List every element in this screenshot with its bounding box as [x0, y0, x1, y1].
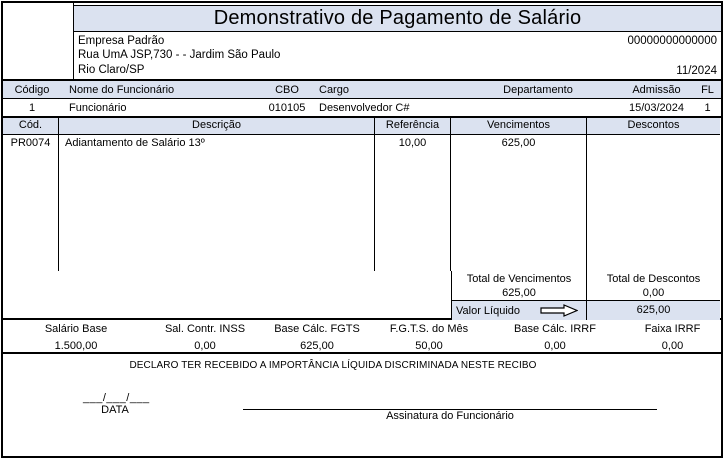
- employee-header-cargo: Cargo: [313, 84, 458, 96]
- page-title: Demonstrativo de Pagamento de Salário: [74, 5, 721, 32]
- total-descontos-label: Total de Descontos: [587, 272, 720, 286]
- total-vencimentos-label: Total de Vencimentos: [452, 272, 586, 286]
- employee-nome: Funcionário: [61, 102, 261, 114]
- base-label-inss: Sal. Contr. INSS: [149, 323, 261, 335]
- base-value-irrf: 0,00: [485, 340, 625, 352]
- employee-codigo: 1: [3, 102, 61, 114]
- employee-section: Código Nome do Funcionário CBO Cargo Dep…: [3, 81, 721, 118]
- declaration-section: DECLARO TER RECEBIDO A IMPORTÂNCIA LÍQUI…: [3, 354, 721, 449]
- base-label-salario-base: Salário Base: [3, 323, 149, 335]
- totals-empty-box: [3, 271, 452, 320]
- employee-data-row: 1 Funcionário 010105 Desenvolvedor C# 15…: [3, 99, 721, 116]
- employee-header-fl: FL: [695, 84, 720, 96]
- item-descricao: Adiantamento de Salário 13º: [59, 135, 375, 271]
- base-value-fgts-mes: 50,00: [373, 340, 485, 352]
- employee-header-cbo: CBO: [261, 84, 313, 96]
- company-city: Rio Claro/SP: [78, 63, 717, 78]
- signature-label: Assinatura do Funcionário: [243, 410, 657, 422]
- base-label-fgts: Base Cálc. FGTS: [261, 323, 373, 335]
- total-descontos: Total de Descontos 0,00: [587, 271, 720, 301]
- totals-section: Total de Vencimentos 625,00 Total de Des…: [3, 271, 721, 320]
- item-vencimentos: 625,00: [451, 135, 587, 271]
- employee-header-departamento: Departamento: [458, 84, 618, 96]
- items-header-vencimentos: Vencimentos: [451, 118, 587, 135]
- bases-section: Salário Base Sal. Contr. INSS Base Cálc.…: [3, 320, 721, 354]
- company-logo-box: [3, 3, 74, 79]
- declaration-text: DECLARO TER RECEBIDO A IMPORTÂNCIA LÍQUI…: [3, 360, 663, 371]
- total-vencimentos: Total de Vencimentos 625,00: [452, 271, 587, 301]
- total-vencimentos-value: 625,00: [452, 286, 586, 300]
- date-fill-placeholder: ___/___/___: [83, 392, 147, 404]
- right-arrow-icon: [540, 304, 578, 317]
- items-table: Cód. Descrição Referência Vencimentos De…: [3, 118, 721, 271]
- company-info: Empresa Padrão Rua UmA JSP,730 - - Jardi…: [74, 32, 721, 80]
- base-value-inss: 0,00: [149, 340, 261, 352]
- employee-admissao: 15/03/2024: [618, 102, 695, 114]
- valor-liquido-label: Valor Líquido: [456, 305, 520, 317]
- employee-header-codigo: Código: [3, 84, 61, 96]
- valor-liquido-cell: Valor Líquido: [452, 301, 587, 320]
- item-descontos: [587, 135, 720, 271]
- base-value-faixa-irrf: 0,00: [625, 340, 720, 352]
- payslip-document: Demonstrativo de Pagamento de Salário Em…: [1, 1, 723, 458]
- base-label-faixa-irrf: Faixa IRRF: [625, 323, 720, 335]
- items-header-cod: Cód.: [3, 118, 59, 135]
- employee-fl: 1: [695, 102, 720, 114]
- items-header-descontos: Descontos: [587, 118, 720, 135]
- base-label-irrf: Base Cálc. IRRF: [485, 323, 625, 335]
- base-label-fgts-mes: F.G.T.S. do Mês: [373, 323, 485, 335]
- header-section: Demonstrativo de Pagamento de Salário Em…: [3, 3, 721, 81]
- company-number: 00000000000000: [627, 34, 717, 49]
- company-name: Empresa Padrão: [78, 34, 717, 49]
- employee-cbo: 010105: [261, 102, 313, 114]
- signature-block: Assinatura do Funcionário: [243, 394, 657, 422]
- employee-header-admissao: Admissão: [618, 84, 695, 96]
- items-header-referencia: Referência: [375, 118, 451, 135]
- employee-cargo: Desenvolvedor C#: [313, 102, 458, 114]
- date-label: DATA: [83, 404, 147, 416]
- signature-line: [243, 394, 657, 410]
- item-cod: PR0074: [3, 135, 59, 271]
- items-header-descricao: Descrição: [59, 118, 375, 135]
- date-block: ___/___/___ DATA: [83, 392, 147, 416]
- company-address: Rua UmA JSP,730 - - Jardim São Paulo: [78, 48, 717, 63]
- employee-header-nome: Nome do Funcionário: [61, 84, 261, 96]
- reference-period: 11/2024: [676, 64, 717, 79]
- base-value-fgts: 625,00: [261, 340, 373, 352]
- base-value-salario-base: 1.500,00: [3, 340, 149, 352]
- valor-liquido-value: 625,00: [587, 301, 720, 320]
- item-referencia: 10,00: [375, 135, 451, 271]
- total-descontos-value: 0,00: [587, 286, 720, 300]
- employee-header-row: Código Nome do Funcionário CBO Cargo Dep…: [3, 81, 721, 99]
